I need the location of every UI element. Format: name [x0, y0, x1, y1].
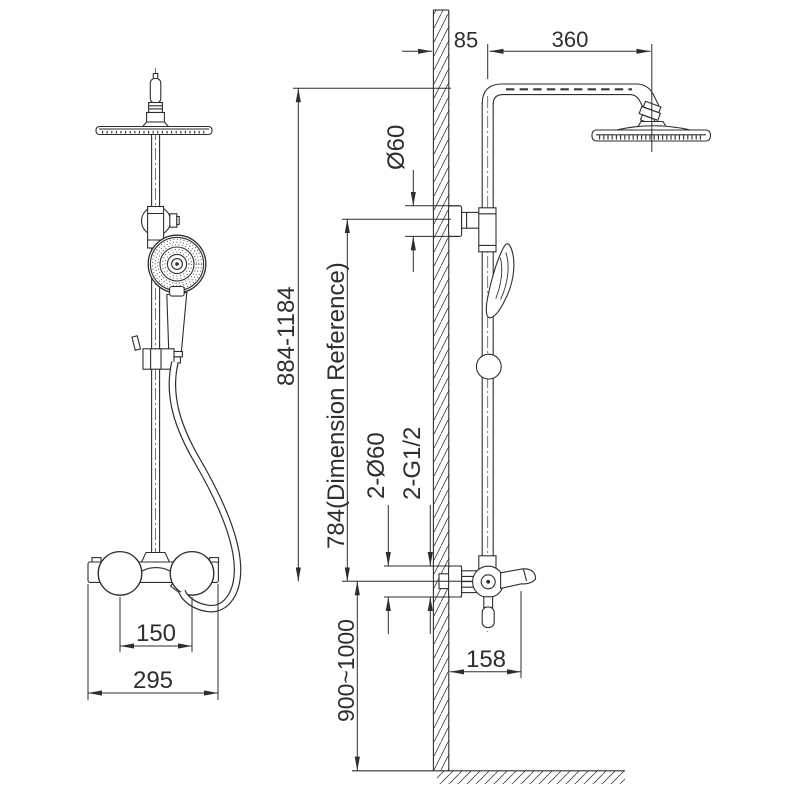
- hand-shower-handle: [167, 293, 187, 353]
- side-slider-knob: [476, 354, 501, 379]
- dim-reference-height: [342, 219, 473, 581]
- label-arm-reach: 360: [552, 27, 589, 52]
- label-mixer-height: 900~1000: [333, 619, 359, 722]
- dim-riser-height-range: [293, 88, 451, 581]
- label-reference-height: 784(Dimension Reference): [323, 262, 350, 549]
- side-shower-arm: [482, 84, 668, 130]
- side-spout: [501, 569, 536, 589]
- mixer-knob-right: [170, 552, 214, 596]
- front-mixer: [88, 552, 219, 596]
- wall-section: [433, 10, 448, 771]
- label-connections-thread: 2-G1/2: [399, 427, 426, 500]
- mixer-knob-left: [98, 552, 142, 596]
- bracket-screw: [170, 214, 177, 227]
- side-shower-head: [592, 126, 710, 141]
- label-handle-spacing: 150: [136, 620, 176, 647]
- front-hand-shower: [148, 235, 206, 363]
- label-riser-height-range: 884-1184: [273, 286, 300, 386]
- front-shower-head: [96, 127, 212, 135]
- front-top-swivel: [143, 74, 169, 127]
- floor-section: [352, 771, 625, 784]
- label-spout-reach: 158: [466, 646, 506, 673]
- label-wall-offset: 85: [454, 28, 478, 53]
- label-mixer-width: 295: [133, 667, 173, 694]
- side-hand-shower: [486, 244, 514, 318]
- side-mixer-handle: [482, 607, 494, 628]
- technical-drawing: 85 360 Ø60 884-1184 784(Dimension Refere…: [0, 0, 800, 800]
- front-slider-clamp: [132, 336, 174, 369]
- front-view: [88, 68, 238, 609]
- side-wall-bracket: [449, 206, 496, 252]
- label-connections-diameter: 2-Ø60: [363, 432, 390, 499]
- technical-drawing-page: 85 360 Ø60 884-1184 784(Dimension Refere…: [0, 0, 800, 800]
- label-flange-diameter: Ø60: [383, 125, 410, 170]
